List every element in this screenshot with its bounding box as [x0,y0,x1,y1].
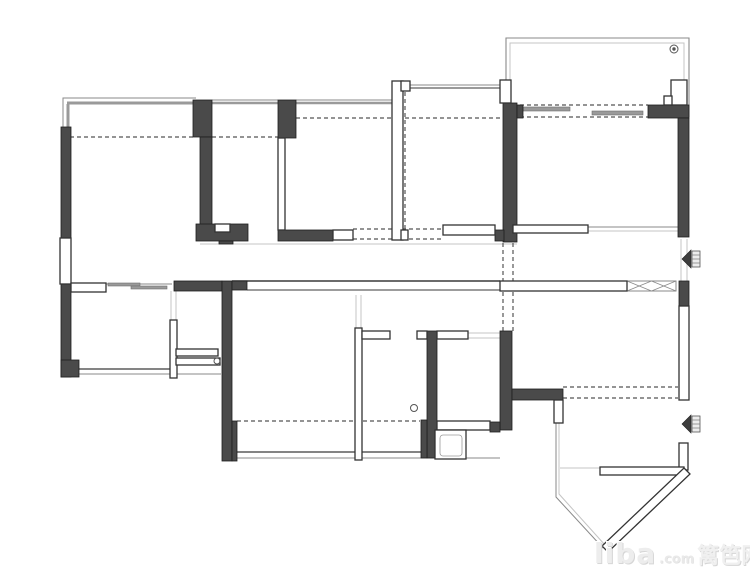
entry-bay-inner-line [559,423,605,545]
wall-hollow [176,358,220,365]
wall-hollow [671,80,687,105]
wall-hollow [554,400,563,423]
wall-hollow [679,306,689,400]
wall-hollow [500,281,627,291]
wall-solid [200,137,212,230]
wall-solid [503,103,517,242]
wall-hollow [71,283,106,292]
wall-hollow [437,421,490,430]
wall-hollow [392,81,403,240]
wall-solid [679,281,689,306]
wall-hollow [664,96,672,105]
wall-hollow [443,225,495,235]
wall-hollow [500,80,511,103]
wall-solid [517,105,523,118]
wall-solid [222,281,232,461]
wall-diagonal-bay [602,468,690,552]
pivot-circle-icon [411,405,418,412]
kitchen-counter-wall [513,225,588,233]
floor-plan-drawing [0,0,750,578]
wall-solid [278,230,333,241]
wall-solid [495,230,504,241]
wall-hollow [600,467,684,475]
sliding-door-panel [131,286,167,289]
wall-hollow [278,138,285,230]
exterior-wall-left-upper [61,127,71,240]
wall-hollow [355,328,362,460]
wall-hollow [437,331,468,339]
fixture-box-inner [440,435,462,456]
sliding-door-panel [592,111,643,115]
door-arrow-icon [682,415,691,433]
wall-hollow [401,81,410,91]
wall-hollow [679,443,688,470]
wall-hollow [215,224,230,232]
wall-solid [490,422,500,432]
wall-solid [421,420,427,458]
window-left [60,238,71,284]
wall-solid [500,331,512,430]
wall-hollow [401,230,408,240]
wall-solid [193,100,212,137]
wall-hollow [417,331,427,339]
duct-box [627,281,676,291]
pivot-circle-icon [673,48,675,50]
wall-solid [512,389,563,400]
wall-hollow [333,230,353,240]
exterior-wall-right [678,118,689,237]
wall-solid [278,100,296,138]
floor-plan-page: liba .com 篱笆网 [0,0,750,578]
wall-solid [232,421,237,461]
wall-hollow [362,331,390,339]
wall-solid [232,281,247,290]
wall-solid [219,241,233,244]
wall-solid [61,360,79,377]
wall-solid [174,281,222,291]
balcony-right-wall [648,105,689,118]
wall-hollow [176,349,218,356]
sliding-door-panel [523,107,570,111]
balcony-inner-outline [510,43,684,80]
sliding-door-panel [108,283,140,286]
entry-bay-outer-line [556,423,603,548]
